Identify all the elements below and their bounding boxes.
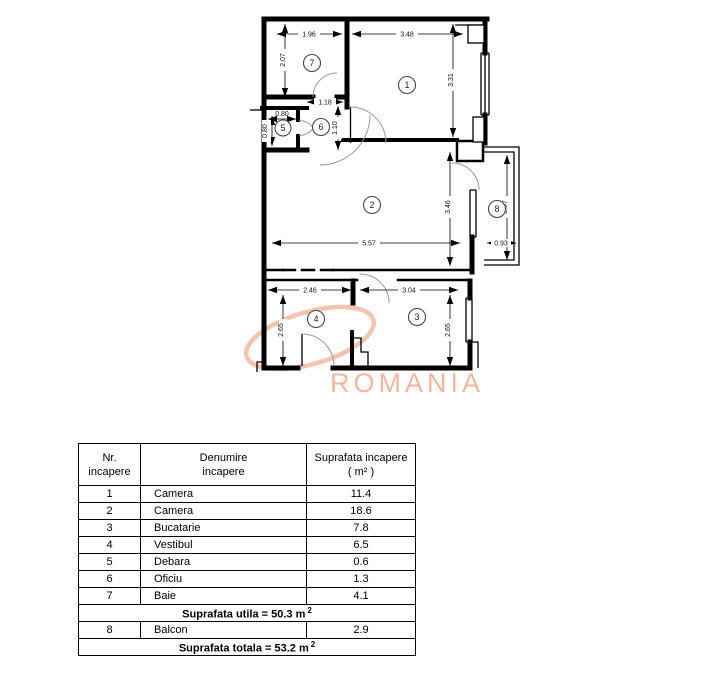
dim-room4-height: 2.65 <box>278 323 285 337</box>
col-header-nr: Nr. incapere <box>79 444 141 486</box>
room-name-cell: Debara <box>141 554 307 571</box>
room-number-cell: 7 <box>79 588 141 605</box>
balcony-row: 8 Balcon 2.9 <box>79 622 416 639</box>
dim-room3-height: 2.65 <box>445 323 452 337</box>
room-label-3: 3 <box>414 312 419 322</box>
dim-room5-width: 0.80 <box>275 111 289 118</box>
table-row: 5 Debara 0.6 <box>79 554 416 571</box>
dim-room7-height: 2.07 <box>280 53 287 67</box>
room-area-cell: 1.3 <box>307 571 416 588</box>
table-row: 2 Camera 18.6 <box>79 503 416 520</box>
pillar <box>457 141 483 161</box>
dim-balcony-width: 0.93 <box>494 241 508 248</box>
room-label-7: 7 <box>309 58 314 68</box>
room-label-1: 1 <box>404 80 409 90</box>
room-name-cell: Baie <box>141 588 307 605</box>
table-row: 1 Camera 11.4 <box>79 486 416 503</box>
room-area-cell: 6.5 <box>307 537 416 554</box>
dim-room4-width: 2.46 <box>303 288 317 295</box>
room-name-cell: Balcon <box>141 622 307 639</box>
dim-hall-width: 1.18 <box>318 100 332 107</box>
room-name-cell: Camera <box>141 503 307 520</box>
dimension-lines <box>268 24 516 366</box>
dim-label-backers <box>262 30 511 341</box>
room-area-cell: 2.9 <box>307 622 416 639</box>
dim-room1-height: 3.31 <box>448 73 455 87</box>
dim-room7-width: 1.96 <box>302 32 316 39</box>
room-name-cell: Oficiu <box>141 571 307 588</box>
col-header-denumire: Denumire incapere <box>141 444 307 486</box>
room-label-5: 5 <box>280 123 285 133</box>
dim-room3-width: 3.04 <box>402 288 416 295</box>
table-row: 7 Baie 4.1 <box>79 588 416 605</box>
windows <box>250 25 519 372</box>
watermark-text: ROMANIA <box>330 368 484 398</box>
summary-totala: Suprafata totala = 53.2 m2 <box>79 639 416 656</box>
room-number-cell: 2 <box>79 503 141 520</box>
room-name-cell: Camera <box>141 486 307 503</box>
room-name-cell: Bucatarie <box>141 520 307 537</box>
room-area-cell: 11.4 <box>307 486 416 503</box>
table-row: 4 Vestibul 6.5 <box>79 537 416 554</box>
summary-utila-row: Suprafata utila = 50.3 m2 <box>79 605 416 622</box>
dim-room5-height: 0.80 <box>262 124 269 138</box>
room-label-8: 8 <box>494 204 499 214</box>
room-label-6: 6 <box>318 122 323 132</box>
summary-totala-row: Suprafata totala = 53.2 m2 <box>79 639 416 656</box>
room-number-cell: 6 <box>79 571 141 588</box>
room-area-cell: 0.6 <box>307 554 416 571</box>
summary-utila: Suprafata utila = 50.3 m2 <box>79 605 416 622</box>
room-number-cell: 8 <box>79 622 141 639</box>
dim-room2-width: 5.57 <box>362 241 376 248</box>
table-row: 6 Oficiu 1.3 <box>79 571 416 588</box>
room-number-cell: 1 <box>79 486 141 503</box>
room-name-cell: Vestibul <box>141 537 307 554</box>
room-area-cell: 18.6 <box>307 503 416 520</box>
dim-hall-height: 1.10 <box>332 121 339 135</box>
room-number-cell: 3 <box>79 520 141 537</box>
dim-room1-width: 3.48 <box>400 32 414 39</box>
col-header-suprafata: Suprafata incapere ( m² ) <box>307 444 416 486</box>
room-area-cell: 4.1 <box>307 588 416 605</box>
table-row: 3 Bucatarie 7.8 <box>79 520 416 537</box>
room-area-cell: 7.8 <box>307 520 416 537</box>
room-rows: 1 Camera 11.4 2 Camera 18.6 3 Bucatarie … <box>79 486 416 605</box>
room-number-cell: 4 <box>79 537 141 554</box>
room-label-4: 4 <box>313 314 318 324</box>
room-label-2: 2 <box>369 200 374 210</box>
area-table: Nr. incapere Denumire incapere Suprafata… <box>78 443 416 656</box>
page: { "plan": { "watermark": "ROMANIA", "roo… <box>0 0 725 699</box>
dim-room2-height: 3.46 <box>445 200 452 214</box>
room-number-cell: 5 <box>79 554 141 571</box>
walls-medium <box>262 108 457 368</box>
